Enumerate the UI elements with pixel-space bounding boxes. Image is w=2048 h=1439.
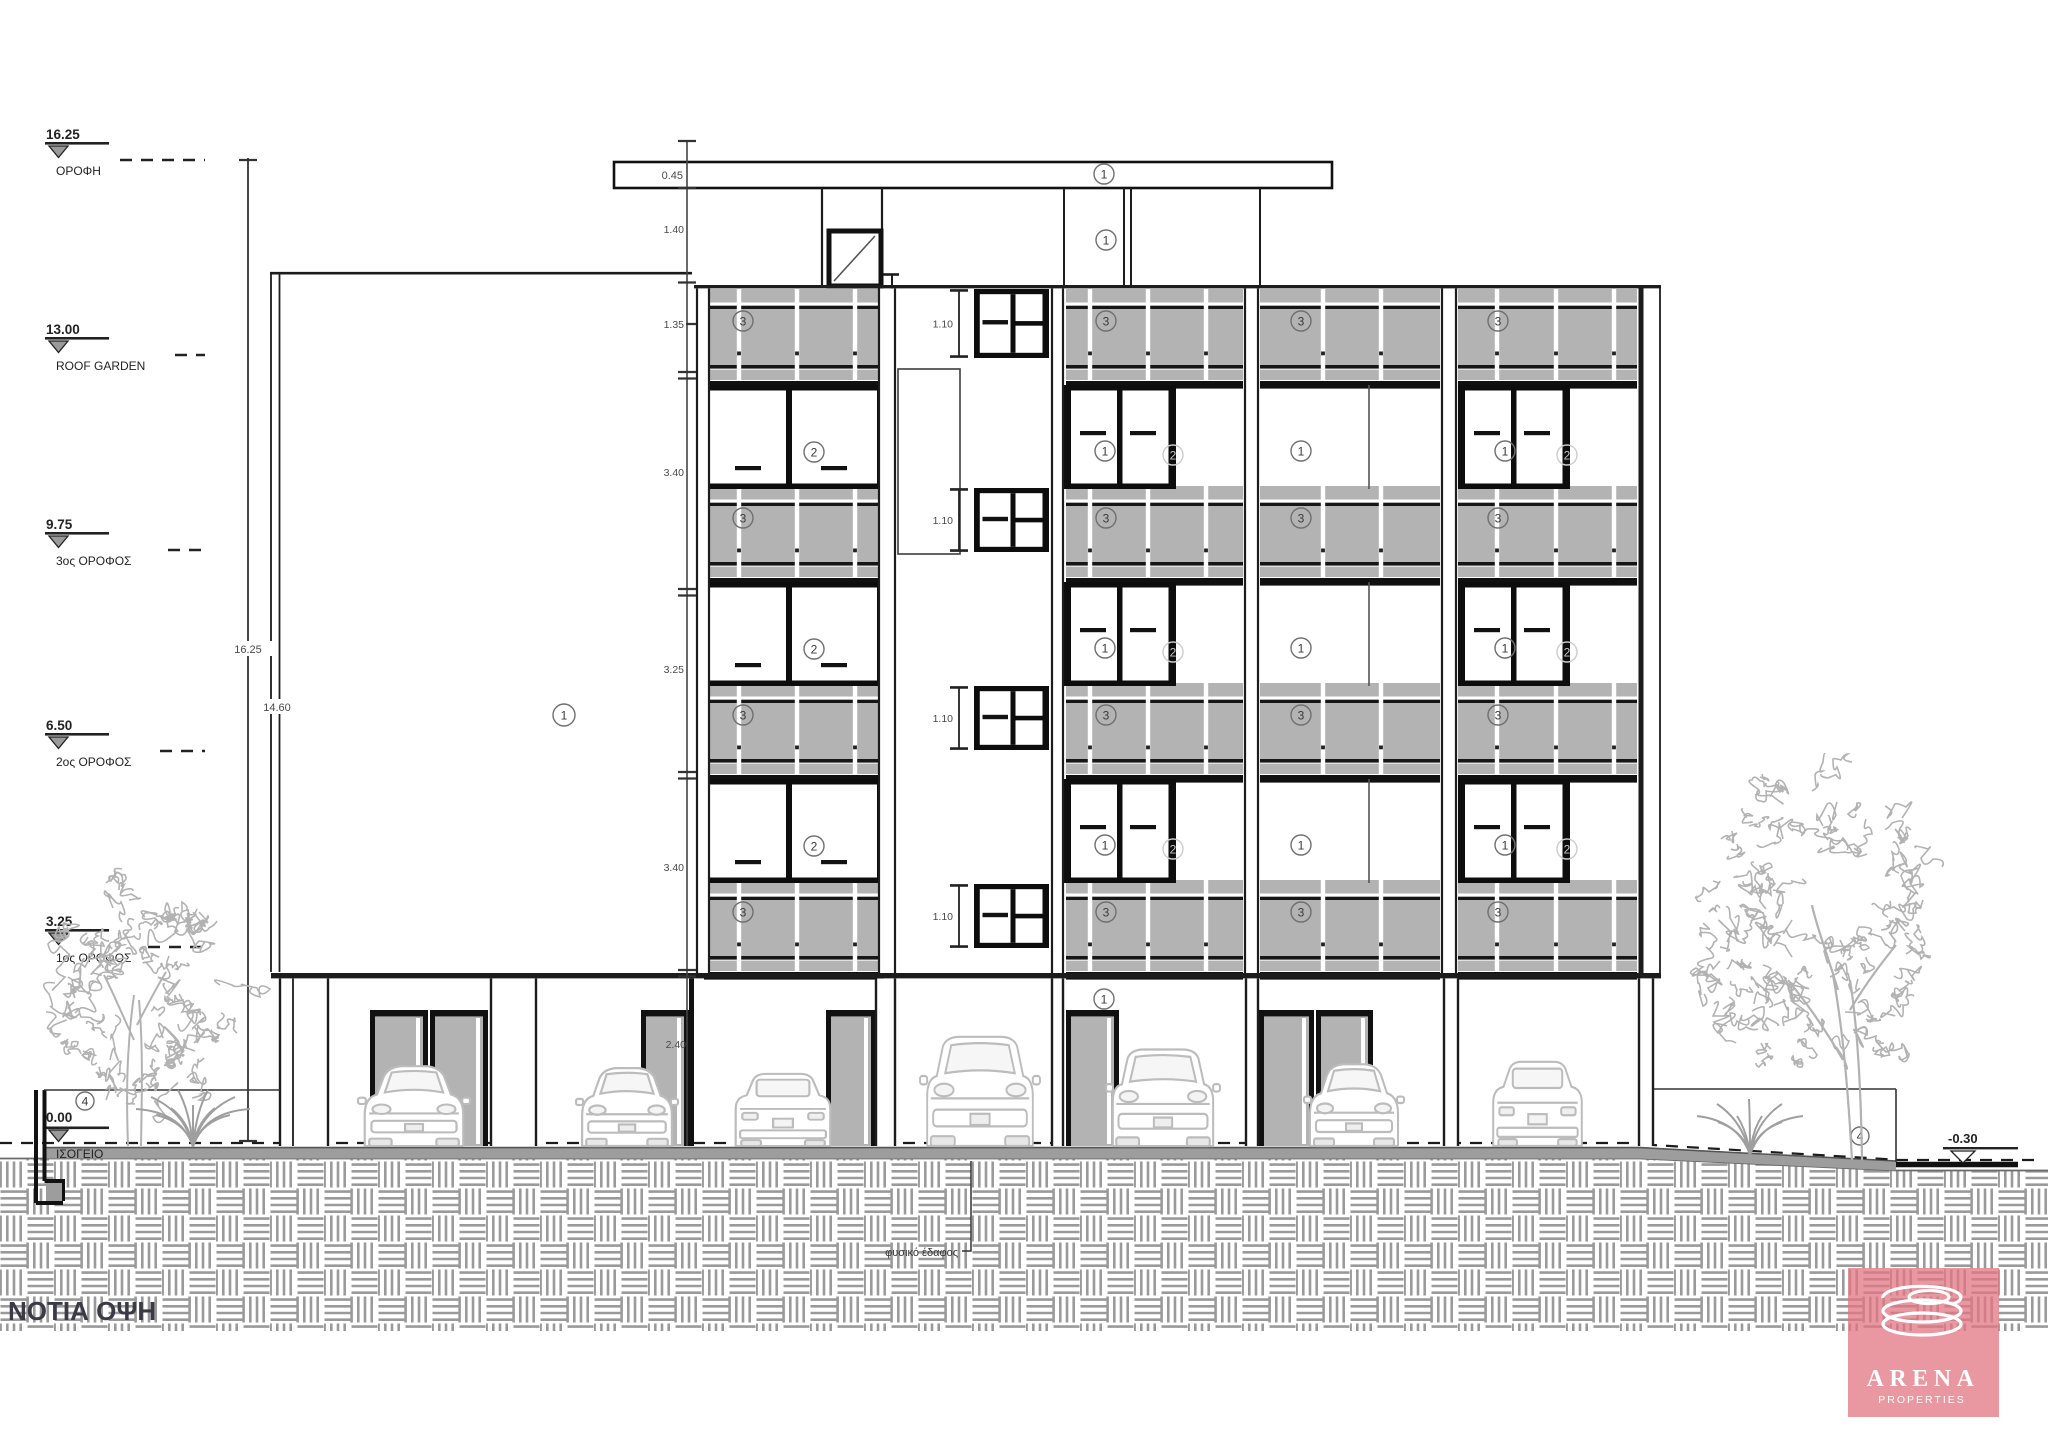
- svg-text:ΙΣΟΓΕΙΟ: ΙΣΟΓΕΙΟ: [56, 1147, 103, 1161]
- svg-text:0.00: 0.00: [46, 1110, 72, 1125]
- svg-text:3: 3: [740, 708, 747, 722]
- svg-text:1: 1: [1101, 167, 1108, 181]
- svg-text:3: 3: [1298, 314, 1305, 328]
- svg-text:2: 2: [1170, 448, 1177, 462]
- svg-text:1: 1: [1102, 444, 1109, 458]
- svg-text:16.25: 16.25: [234, 644, 262, 656]
- svg-text:1.10: 1.10: [933, 713, 954, 725]
- svg-text:3: 3: [1103, 905, 1110, 919]
- svg-text:1: 1: [1298, 838, 1305, 852]
- svg-text:1: 1: [1502, 641, 1509, 655]
- svg-text:4: 4: [82, 1094, 89, 1108]
- svg-text:3: 3: [1495, 511, 1502, 525]
- svg-text:-0.30: -0.30: [1948, 1131, 1978, 1146]
- svg-text:2: 2: [1564, 645, 1571, 659]
- svg-text:ROOF GARDEN: ROOF GARDEN: [56, 359, 145, 373]
- svg-text:1: 1: [1502, 444, 1509, 458]
- svg-text:1: 1: [1101, 992, 1108, 1006]
- svg-text:2: 2: [1170, 645, 1177, 659]
- svg-text:3: 3: [1298, 905, 1305, 919]
- svg-text:3: 3: [1298, 511, 1305, 525]
- svg-text:ARENA: ARENA: [1867, 1366, 1980, 1392]
- svg-text:1: 1: [1298, 444, 1305, 458]
- svg-text:3.40: 3.40: [664, 862, 685, 874]
- svg-text:1.10: 1.10: [933, 515, 954, 527]
- svg-text:2: 2: [811, 642, 818, 656]
- svg-text:3ος ΟΡΟΦΟΣ: 3ος ΟΡΟΦΟΣ: [56, 554, 131, 568]
- svg-text:14.60: 14.60: [263, 702, 291, 714]
- svg-text:3: 3: [1495, 905, 1502, 919]
- svg-text:1: 1: [1298, 641, 1305, 655]
- svg-text:13.00: 13.00: [46, 322, 80, 337]
- svg-text:6.50: 6.50: [46, 718, 72, 733]
- svg-text:1: 1: [1102, 641, 1109, 655]
- svg-text:3: 3: [740, 905, 747, 919]
- svg-text:3: 3: [1103, 314, 1110, 328]
- svg-text:3.40: 3.40: [664, 467, 685, 479]
- svg-text:1.40: 1.40: [664, 224, 685, 236]
- svg-text:3: 3: [740, 314, 747, 328]
- svg-text:2: 2: [1564, 448, 1571, 462]
- svg-text:1: 1: [1102, 838, 1109, 852]
- svg-text:3: 3: [1298, 708, 1305, 722]
- svg-text:2.40: 2.40: [666, 1039, 687, 1051]
- svg-text:1.10: 1.10: [933, 319, 954, 331]
- svg-text:PROPERTIES: PROPERTIES: [1878, 1394, 1966, 1406]
- svg-text:1.10: 1.10: [933, 911, 954, 923]
- svg-text:ΟΡΟΦΗ: ΟΡΟΦΗ: [56, 164, 101, 178]
- svg-text:1: 1: [1502, 838, 1509, 852]
- svg-text:3: 3: [1495, 708, 1502, 722]
- svg-text:2: 2: [1564, 842, 1571, 856]
- svg-text:1: 1: [561, 708, 568, 722]
- svg-text:3: 3: [1495, 314, 1502, 328]
- svg-text:3: 3: [1103, 708, 1110, 722]
- svg-text:3: 3: [740, 511, 747, 525]
- svg-text:2: 2: [811, 445, 818, 459]
- svg-text:1: 1: [1103, 233, 1110, 247]
- svg-text:16.25: 16.25: [46, 127, 80, 142]
- svg-text:1.35: 1.35: [664, 319, 685, 331]
- svg-text:0.45: 0.45: [662, 170, 683, 182]
- svg-text:2: 2: [1170, 842, 1177, 856]
- svg-text:2: 2: [811, 839, 818, 853]
- svg-text:3.25: 3.25: [664, 664, 685, 676]
- svg-text:ΝΟΤΙΑ ΟΨΗ: ΝΟΤΙΑ ΟΨΗ: [8, 1296, 156, 1326]
- svg-text:9.75: 9.75: [46, 517, 73, 532]
- svg-text:2ος ΟΡΟΦΟΣ: 2ος ΟΡΟΦΟΣ: [56, 755, 131, 769]
- svg-text:3: 3: [1103, 511, 1110, 525]
- svg-text:φυσικό έδαφος: φυσικό έδαφος: [885, 1247, 958, 1259]
